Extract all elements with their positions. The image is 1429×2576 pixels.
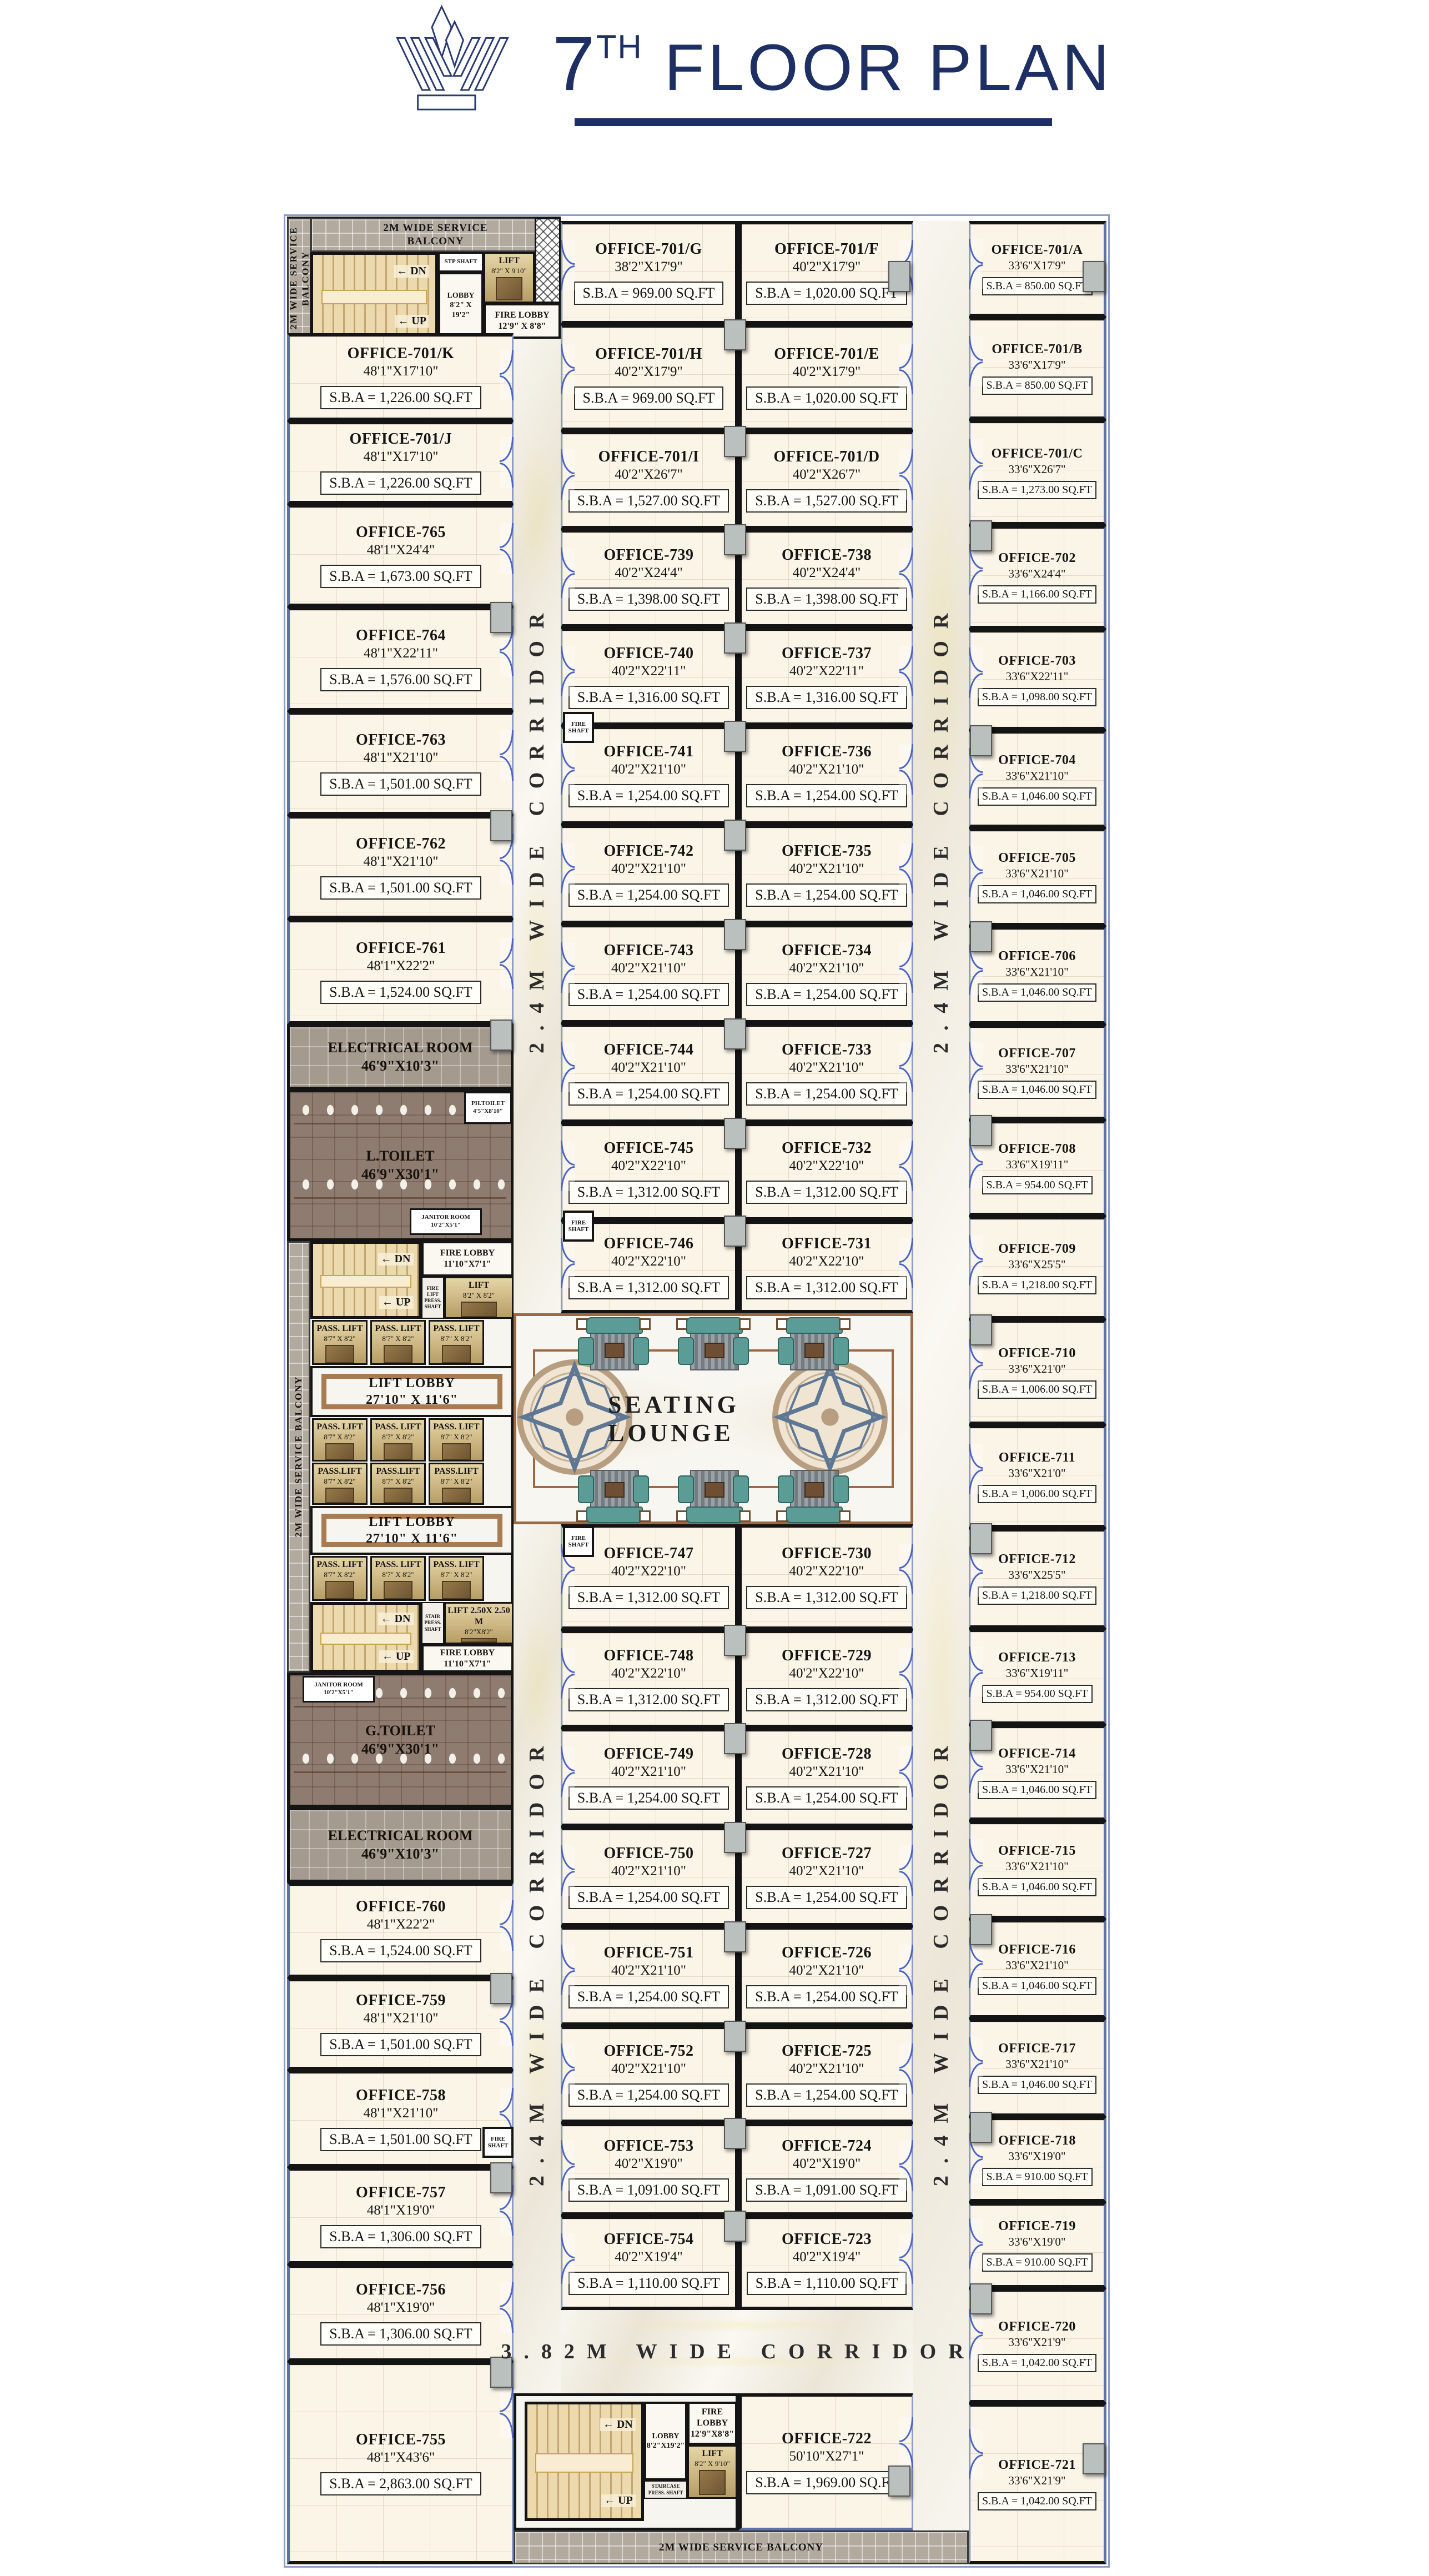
room-label: OFFICE-709	[998, 1242, 1076, 1257]
room-area-box: S.B.A = 954.00 SQ.FT	[982, 1176, 1093, 1194]
room-dimensions: 33'6"X26'7"	[1009, 463, 1066, 476]
column-pillar	[888, 261, 910, 292]
room-area-box: S.B.A = 1,110.00 SQ.FT	[568, 2272, 728, 2295]
office-701F: OFFICE-701/F40'2"X17'9"S.B.A = 1,020.00 …	[738, 221, 913, 324]
room-dimensions: 48'1"X24'4"	[367, 543, 435, 558]
office-701J: OFFICE-701/J48'1"X17'10"S.B.A = 1,226.00…	[287, 421, 514, 504]
office-701K: OFFICE-701/K48'1"X17'10"S.B.A = 1,226.00…	[287, 333, 514, 421]
room-label: OFFICE-701/H	[595, 345, 702, 363]
door-icon	[969, 1042, 984, 1095]
room-dimensions: 33'6"X21'10"	[1005, 1762, 1068, 1776]
office-764: OFFICE-76448'1"X22'11"S.B.A = 1,576.00 S…	[287, 607, 514, 711]
room-dimensions: 40'2"X21'10"	[789, 1963, 864, 1979]
room-dimensions: 40'2"X17'9"	[793, 259, 861, 275]
office-713: OFFICE-71333'6"X19'11"S.B.A = 954.00 SQ.…	[969, 1629, 1106, 1725]
room-dimensions: 40'2"X22'11"	[789, 664, 864, 679]
room-dimensions: 40'2"X22'10"	[789, 1666, 864, 1681]
room-dimensions: 33'6"X25'5"	[1009, 1568, 1066, 1582]
service-balcony-bottom: 2M WIDE SERVICE BALCONY	[514, 2530, 969, 2564]
corridor-label: 3.82M WIDE CORRIDOR	[572, 2328, 905, 2375]
room-dimensions: 33'6"X17'9"	[1009, 358, 1066, 372]
room-label: OFFICE-753	[603, 2137, 693, 2155]
room-dimensions: 48'1"X43'6"	[367, 2450, 435, 2465]
office-701D: OFFICE-701/D40'2"X26'7"S.B.A = 1,527.00 …	[738, 431, 913, 529]
room-area-box: S.B.A = 1,306.00 SQ.FT	[320, 2225, 481, 2248]
room-label: OFFICE-728	[782, 1745, 872, 1763]
room-label: OFFICE-761	[356, 940, 446, 957]
room-dimensions: 40'2"X17'9"	[615, 364, 682, 380]
door-icon	[561, 2043, 576, 2096]
room-label: OFFICE-724	[782, 2137, 872, 2155]
office-724: OFFICE-72440'2"X19'0"S.B.A = 1,091.00 SQ…	[738, 2123, 913, 2216]
pass-lift-6: PASS. LIFT8'7" X 8'2"	[429, 1418, 484, 1462]
pass-lift-12: PASS. LIFT8'7" X 8'2"	[429, 1556, 484, 1601]
office-760: OFFICE-76048'1"X22'2"S.B.A = 1,524.00 SQ…	[287, 1882, 514, 1978]
room-area-box: S.B.A = 1,273.00 SQ.FT	[978, 481, 1096, 499]
room-label: OFFICE-755	[356, 2431, 446, 2449]
door-icon	[898, 1648, 913, 1701]
room-dimensions: 40'2"X22'10"	[789, 1564, 864, 1579]
pass-lift-4: PASS. LIFT8'7" X 8'2"	[312, 1418, 368, 1462]
room-label: OFFICE-738	[782, 546, 872, 564]
door-icon	[561, 344, 576, 396]
lift-bottom: LIFT8'2" X 9'10"	[687, 2445, 737, 2499]
room-label: OFFICE-702	[998, 551, 1076, 566]
room-dimensions: 48'1"X22'11"	[364, 646, 438, 661]
room-label: OFFICE-750	[603, 1845, 693, 1862]
staircase-press-shaft-bottom: STAIRCASE PRESS. SHAFT	[644, 2480, 687, 2499]
office-703: OFFICE-70333'6"X22'11"S.B.A = 1,098.00 S…	[969, 629, 1106, 730]
room-label: OFFICE-737	[782, 645, 872, 662]
room-area-box: S.B.A = 954.00 SQ.FT	[982, 1685, 1093, 1703]
door-icon	[561, 1945, 576, 1997]
room-label: OFFICE-701/I	[598, 448, 700, 466]
room-label: OFFICE-758	[356, 2087, 446, 2105]
room-label: OFFICE-711	[999, 1450, 1075, 1465]
room-area-box: S.B.A = 1,254.00 SQ.FT	[568, 2083, 729, 2107]
office-757: OFFICE-75748'1"X19'0"S.B.A = 1,306.00 SQ…	[287, 2167, 514, 2264]
room-dimensions: 40'2"X19'0"	[793, 2156, 861, 2172]
office-742: OFFICE-74240'2"X21'10"S.B.A = 1,254.00 S…	[561, 825, 738, 924]
room-dimensions: 40'2"X21'10"	[789, 762, 864, 777]
room-label: OFFICE-705	[998, 851, 1076, 866]
room-dimensions: 40'2"X22'11"	[611, 664, 686, 679]
column-pillar	[724, 2021, 746, 2052]
room-label: OFFICE-713	[998, 1650, 1076, 1665]
sofa-set	[577, 1459, 650, 1523]
stp-shaft: STP SHAFT	[438, 252, 484, 272]
room-dimensions: 40'2"X21'10"	[789, 861, 864, 877]
room-label: OFFICE-722	[782, 2430, 872, 2448]
fire-lobby-core-upper: FIRE LOBBY11'10"X7'1"	[421, 1241, 514, 1277]
room-dimensions: 40'2"X24'4"	[793, 565, 861, 581]
door-icon	[498, 626, 514, 679]
lobby-top: LOBBY8'2" X 19'2"	[438, 272, 484, 339]
room-dimensions: 40'2"X21'10"	[789, 1764, 864, 1780]
corridor-right	[913, 221, 969, 2564]
room-area-box: S.B.A = 1,501.00 SQ.FT	[320, 2128, 481, 2151]
room-area-box: S.B.A = 1,046.00 SQ.FT	[978, 1977, 1096, 1995]
room-label: OFFICE-734	[782, 942, 872, 960]
room-label: OFFICE-762	[356, 835, 446, 853]
door-icon	[498, 523, 514, 576]
door-icon	[969, 945, 984, 997]
office-754: OFFICE-75440'2"X19'4"S.B.A = 1,110.00 SQ…	[561, 2216, 738, 2310]
office-745: OFFICE-74540'2"X22'10"S.B.A = 1,312.00 S…	[561, 1123, 738, 1221]
room-label: OFFICE-756	[356, 2281, 446, 2299]
office-731: OFFICE-73140'2"X22'10"S.B.A = 1,312.00 S…	[738, 1221, 913, 1313]
door-icon	[898, 2043, 913, 2096]
janitor-room-lower: JANITOR ROOM10'2"X5'1"	[303, 1676, 375, 1703]
room-dimensions: 33'6"X17'9"	[1009, 259, 1066, 273]
room-dimensions: 40'2"X22'10"	[611, 1564, 686, 1579]
room-area-box: S.B.A = 1,046.00 SQ.FT	[978, 885, 1096, 903]
column-pillar	[724, 426, 746, 457]
room-dimensions: 33'6"X21'10"	[1005, 1062, 1068, 1076]
door-icon	[561, 1746, 576, 1799]
room-dimensions: 48'1"X22'2"	[367, 1917, 435, 1932]
office-758: OFFICE-75848'1"X21'10"S.B.A = 1,501.00 S…	[287, 2070, 514, 2167]
room-label: OFFICE-749	[603, 1745, 693, 1763]
door-icon	[969, 1546, 984, 1599]
room-dimensions: 40'2"X22'10"	[611, 1666, 686, 1681]
room-area-box: S.B.A = 1,312.00 SQ.FT	[568, 1276, 729, 1299]
column-pillar	[490, 810, 512, 841]
room-dimensions: 48'1"X19'0"	[367, 2203, 435, 2218]
room-area-box: S.B.A = 1,098.00 SQ.FT	[978, 688, 1096, 706]
room-label: OFFICE-757	[356, 2184, 446, 2202]
room-dimensions: 33'6"X21'10"	[1005, 1860, 1068, 1874]
room-area-box: S.B.A = 1,316.00 SQ.FT	[568, 686, 729, 709]
door-icon	[898, 1238, 913, 1290]
room-dimensions: 50'10"X27'1"	[789, 2449, 864, 2464]
room-dimensions: 40'2"X21'10"	[789, 1864, 864, 1879]
room-label: OFFICE-732	[782, 1139, 872, 1157]
door-icon	[898, 1746, 913, 1799]
office-737: OFFICE-73740'2"X22'11"S.B.A = 1,316.00 S…	[738, 627, 913, 726]
office-701H: OFFICE-701/H40'2"X17'9"S.B.A = 969.00 SQ…	[561, 324, 738, 431]
room-dimensions: 48'1"X21'10"	[364, 2011, 439, 2026]
door-icon	[969, 239, 984, 292]
room-area-box: S.B.A = 1,110.00 SQ.FT	[747, 2272, 907, 2295]
room-label: OFFICE-701/C	[992, 446, 1083, 461]
room-area-box: S.B.A = 1,046.00 SQ.FT	[978, 787, 1096, 806]
room-dimensions: 48'1"X21'10"	[364, 2106, 439, 2121]
pass-lift-3: PASS. LIFT8'7" X 8'2"	[429, 1320, 484, 1365]
sofa-set	[777, 1317, 849, 1381]
office-715: OFFICE-71533'6"X21'10"S.B.A = 1,046.00 S…	[969, 1821, 1106, 1919]
room-dimensions: 33'6"X19'0"	[1009, 2150, 1066, 2163]
column-pillar	[1083, 2443, 1105, 2474]
column-pillar	[888, 2465, 910, 2497]
office-744: OFFICE-74440'2"X21'10"S.B.A = 1,254.00 S…	[561, 1023, 738, 1123]
room-area-box: S.B.A = 1,046.00 SQ.FT	[978, 1081, 1096, 1099]
door-icon	[969, 439, 984, 492]
room-area-box: S.B.A = 1,312.00 SQ.FT	[568, 1181, 729, 1204]
pass-lift-5: PASS. LIFT8'7" X 8'2"	[370, 1418, 426, 1462]
office-752: OFFICE-75240'2"X21'10"S.B.A = 1,254.00 S…	[561, 2026, 738, 2123]
room-dimensions: 40'2"X21'10"	[789, 2061, 864, 2077]
room-label: OFFICE-752	[603, 2042, 693, 2060]
room-label: OFFICE-726	[782, 1944, 872, 1962]
room-dimensions: 33'6"X19'11"	[1006, 1158, 1069, 1172]
room-area-box: S.B.A = 1,524.00 SQ.FT	[320, 981, 481, 1004]
room-label: OFFICE-719	[998, 2219, 1076, 2234]
column-pillar	[724, 319, 746, 350]
fire-lift-lower: LIFT 2.50X 2.50 M8'2"X8'2"	[444, 1602, 514, 1644]
column-pillar	[724, 1921, 746, 1952]
room-area-box: S.B.A = 1,254.00 SQ.FT	[746, 1786, 907, 1810]
column-pillar	[970, 1523, 992, 1554]
room-label: OFFICE-763	[356, 731, 446, 749]
room-label: OFFICE-701/A	[992, 243, 1083, 258]
room-dimensions: 48'1"X21'10"	[364, 854, 439, 870]
staircase-core-lower: ← DN← UP	[310, 1602, 421, 1673]
office-707: OFFICE-70733'6"X21'10"S.B.A = 1,046.00 S…	[969, 1025, 1106, 1120]
room-area-box: S.B.A = 1,969.00 SQ.FT	[746, 2471, 907, 2494]
door-icon	[561, 449, 576, 502]
office-765: OFFICE-76548'1"X24'4"S.B.A = 1,673.00 SQ…	[287, 504, 514, 607]
room-label: OFFICE-716	[998, 1942, 1076, 1957]
room-area-box: S.B.A = 1,218.00 SQ.FT	[978, 1276, 1096, 1294]
column-pillar	[724, 820, 746, 851]
office-725: OFFICE-72540'2"X21'10"S.B.A = 1,254.00 S…	[738, 2026, 913, 2123]
door-icon	[498, 834, 514, 887]
door-icon	[969, 2429, 984, 2482]
fire-lobby-bottom: FIRE LOBBY12'9"X8'8"	[687, 2402, 737, 2445]
room-label: OFFICE-701/G	[595, 240, 702, 258]
room-area-box: S.B.A = 1,312.00 SQ.FT	[568, 1586, 729, 1609]
column-pillar	[490, 1973, 512, 2004]
column-pillar	[724, 919, 746, 950]
room-dimensions: 33'6"X21'10"	[1005, 2057, 1068, 2071]
room-dimensions: 40'2"X21'10"	[611, 1764, 686, 1780]
room-label: OFFICE-715	[998, 1844, 1076, 1859]
room-area-box: S.B.A = 1,576.00 SQ.FT	[320, 668, 481, 691]
room-label: OFFICE-759	[356, 1992, 446, 2010]
room-label: OFFICE-708	[998, 1142, 1076, 1157]
room-label: OFFICE-703	[998, 654, 1076, 669]
room-dimensions: 40'2"X22'10"	[611, 1254, 686, 1269]
room-area-box: S.B.A = 1,398.00 SQ.FT	[746, 587, 907, 611]
office-763: OFFICE-76348'1"X21'10"S.B.A = 1,501.00 S…	[287, 711, 514, 815]
office-738: OFFICE-73840'2"X24'4"S.B.A = 1,398.00 SQ…	[738, 529, 913, 627]
corridor-label: 2.4M WIDE CORRIDOR	[515, 639, 559, 1016]
office-753: OFFICE-75340'2"X19'0"S.B.A = 1,091.00 SQ…	[561, 2123, 738, 2216]
room-dimensions: 40'2"X19'4"	[793, 2249, 861, 2265]
door-icon	[561, 744, 576, 797]
fire-lobby-core-lower: FIRE LOBBY11'10"X7'1"	[421, 1644, 514, 1673]
room-dimensions: 40'2"X24'4"	[615, 565, 682, 581]
room-dimensions: 33'6"X21'10"	[1005, 965, 1068, 979]
room-area-box: S.B.A = 1,006.00 SQ.FT	[978, 1485, 1096, 1503]
column-pillar	[1083, 261, 1105, 292]
office-732: OFFICE-73240'2"X22'10"S.B.A = 1,312.00 S…	[738, 1123, 913, 1221]
room-label: OFFICE-701/F	[774, 240, 879, 258]
office-730: OFFICE-73040'2"X22'10"S.B.A = 1,312.00 S…	[738, 1524, 913, 1630]
room-label: OFFICE-736	[782, 743, 872, 761]
room-dimensions: 40'2"X21'10"	[611, 2061, 686, 2077]
room-dimensions: 40'2"X22'10"	[611, 1158, 686, 1174]
door-icon	[561, 1238, 576, 1290]
room-area-box: S.B.A = 1,312.00 SQ.FT	[568, 1688, 729, 1711]
door-icon	[561, 1648, 576, 1701]
office-727: OFFICE-72740'2"X21'10"S.B.A = 1,254.00 S…	[738, 1827, 913, 1926]
door-icon	[969, 2037, 984, 2090]
room-dimensions: 33'6"X24'4"	[1009, 567, 1066, 581]
fire-shaft: FIRE SHAFT	[563, 1211, 594, 1242]
room-label: OFFICE-744	[603, 1041, 693, 1059]
office-719: OFFICE-71933'6"X19'0"S.B.A = 910.00 SQ.F…	[969, 2202, 1106, 2288]
door-icon	[969, 544, 984, 597]
sofa-set	[677, 1459, 749, 1523]
pass-lift-2: PASS. LIFT8'7" X 8'2"	[370, 1320, 426, 1365]
room-label: OFFICE-701/D	[773, 448, 879, 466]
fire-shaft: FIRE SHAFT	[563, 1526, 594, 1557]
room-dimensions: 48'1"X17'10"	[364, 449, 439, 465]
room-label: OFFICE-746	[603, 1235, 693, 1253]
door-icon	[561, 942, 576, 995]
room-label: OFFICE-721	[998, 2458, 1076, 2473]
room-area-box: S.B.A = 1,046.00 SQ.FT	[978, 983, 1096, 1002]
room-label: OFFICE-701/E	[774, 345, 879, 363]
column-pillar	[970, 520, 992, 551]
pass-lift-10: PASS. LIFT8'7" X 8'2"	[312, 1556, 368, 1601]
room-label: OFFICE-742	[603, 842, 693, 860]
door-icon	[969, 336, 984, 389]
room-area-box: S.B.A = 1,312.00 SQ.FT	[746, 1181, 907, 1204]
lift-top: LIFT8'2" X 9'10"	[484, 252, 535, 303]
room-area-box: S.B.A = 1,306.00 SQ.FT	[320, 2322, 481, 2346]
office-735: OFFICE-73540'2"X21'10"S.B.A = 1,254.00 S…	[738, 825, 913, 924]
office-740: OFFICE-74040'2"X22'11"S.B.A = 1,316.00 S…	[561, 627, 738, 726]
room-area-box: S.B.A = 1,501.00 SQ.FT	[320, 772, 481, 796]
room-area-box: S.B.A = 1,398.00 SQ.FT	[568, 587, 729, 611]
lift-lobby-lower: LIFT LOBBY27'10" X 11'6"	[310, 1506, 514, 1555]
column-pillar	[970, 2112, 992, 2143]
room-area-box: S.B.A = 1,046.00 SQ.FT	[978, 2076, 1096, 2094]
column-pillar	[724, 622, 746, 654]
corridor-label: 2.4M WIDE CORRIDOR	[919, 1771, 963, 2149]
room-area-box: S.B.A = 969.00 SQ.FT	[574, 386, 724, 410]
door-icon	[898, 2417, 913, 2470]
fire-lift-press-shaft: FIRE LIFTPRESS.SHAFT	[421, 1277, 444, 1319]
door-icon	[898, 1845, 913, 1898]
room-dimensions: 33'6"X21'10"	[1005, 1959, 1068, 1972]
door-icon	[898, 646, 913, 699]
room-dimensions: 33'6"X21'0"	[1009, 1467, 1066, 1480]
room-area-box: S.B.A = 1,312.00 SQ.FT	[746, 1688, 907, 1711]
room-dimensions: 48'1"X17'10"	[364, 364, 439, 379]
room-area-box: S.B.A = 910.00 SQ.FT	[982, 2253, 1093, 2272]
door-icon	[498, 1900, 514, 1953]
door-icon	[498, 437, 514, 490]
pass-lift-8: PASS.LIFT8'7" X 8'2"	[370, 1463, 426, 1505]
door-icon	[561, 548, 576, 600]
room-area-box: S.B.A = 1,091.00 SQ.FT	[568, 2178, 729, 2202]
room-area-box: S.B.A = 850.00 SQ.FT	[982, 277, 1093, 295]
room-area-box: S.B.A = 1,218.00 SQ.FT	[978, 1586, 1096, 1605]
room-area-box: S.B.A = 910.00 SQ.FT	[982, 2168, 1093, 2186]
door-icon	[498, 350, 514, 403]
lobby-bottom: LOBBY8'2"X19'2"	[644, 2402, 687, 2480]
column-pillar	[490, 602, 512, 633]
room-label: OFFICE-701/K	[348, 345, 455, 363]
room-label: OFFICE-754	[603, 2231, 693, 2248]
room-area-box: S.B.A = 1,042.00 SQ.FT	[978, 2354, 1096, 2372]
column-pillar	[970, 2283, 992, 2314]
service-balcony-top: 2M WIDE SERVICEBALCONY	[310, 218, 561, 252]
room-area-box: S.B.A = 1,046.00 SQ.FT	[978, 1781, 1096, 1799]
door-icon	[969, 1646, 984, 1699]
door-icon	[969, 1339, 984, 1392]
room-dimensions: 40'2"X21'10"	[789, 961, 864, 976]
room-label: OFFICE-740	[603, 645, 693, 662]
corridor-label: 2.4M WIDE CORRIDOR	[919, 639, 963, 1016]
room-label: OFFICE-741	[603, 743, 693, 761]
room-label: OFFICE-745	[603, 1139, 693, 1157]
room-area-box: S.B.A = 1,527.00 SQ.FT	[568, 489, 729, 513]
room-label: OFFICE-730	[782, 1545, 872, 1563]
office-762: OFFICE-76248'1"X21'10"S.B.A = 1,501.00 S…	[287, 815, 514, 919]
column-pillar	[724, 524, 746, 555]
office-729: OFFICE-72940'2"X22'10"S.B.A = 1,312.00 S…	[738, 1630, 913, 1728]
room-dimensions: 33'6"X21'0"	[1009, 1362, 1066, 1376]
room-label: OFFICE-701/B	[992, 342, 1082, 357]
room-dimensions: 48'1"X22'2"	[367, 958, 435, 974]
pass-lift-1: PASS. LIFT8'7" X 8'2"	[312, 1320, 368, 1365]
office-733: OFFICE-73340'2"X21'10"S.B.A = 1,254.00 S…	[738, 1023, 913, 1123]
room-label: OFFICE-765	[356, 524, 446, 541]
room-area-box: S.B.A = 1,254.00 SQ.FT	[746, 983, 907, 1006]
office-709: OFFICE-70933'6"X25'5"S.B.A = 1,218.00 SQ…	[969, 1216, 1106, 1319]
door-icon	[898, 1945, 913, 1997]
room-label: OFFICE-707	[998, 1046, 1076, 1061]
door-icon	[898, 843, 913, 896]
fire-shaft: FIRE SHAFT	[482, 2127, 514, 2158]
door-icon	[969, 1444, 984, 1497]
column-pillar	[724, 1625, 746, 1656]
room-dimensions: 33'6"X25'5"	[1009, 1258, 1066, 1272]
room-dimensions: 40'2"X21'10"	[611, 1864, 686, 1879]
room-area-box: S.B.A = 1,254.00 SQ.FT	[568, 1786, 729, 1810]
room-label: OFFICE-764	[356, 627, 446, 645]
door-icon	[969, 2218, 984, 2271]
column-pillar	[970, 725, 992, 756]
room-label: OFFICE-714	[998, 1746, 1076, 1761]
service-balcony-top-left: 2M WIDE SERVICE BALCONY	[287, 218, 311, 339]
room-area-box: S.B.A = 1,254.00 SQ.FT	[568, 784, 729, 807]
room-area-box: S.B.A = 1,226.00 SQ.FT	[320, 471, 481, 495]
office-726: OFFICE-72640'2"X21'10"S.B.A = 1,254.00 S…	[738, 1926, 913, 2026]
room-label: OFFICE-701/J	[350, 430, 452, 448]
room-label: OFFICE-710	[998, 1346, 1076, 1361]
sofa-set	[677, 1317, 749, 1381]
service-balcony-mid: 2M WIDE SERVICE BALCONY	[287, 1241, 310, 1673]
room-area-box: S.B.A = 1,527.00 SQ.FT	[746, 489, 907, 513]
sofa-set	[777, 1459, 849, 1523]
door-icon	[898, 1042, 913, 1094]
room-label: OFFICE-718	[998, 2133, 1076, 2148]
room-label: OFFICE-735	[782, 842, 872, 860]
seating-lounge-label: SEATING LOUNGE	[608, 1399, 830, 1438]
door-icon	[898, 1141, 913, 1193]
room-dimensions: 40'2"X22'10"	[789, 1158, 864, 1174]
room-area-box: S.B.A = 1,673.00 SQ.FT	[320, 565, 481, 588]
column-pillar	[970, 1914, 992, 1945]
door-icon	[498, 730, 514, 783]
door-icon	[561, 240, 576, 293]
